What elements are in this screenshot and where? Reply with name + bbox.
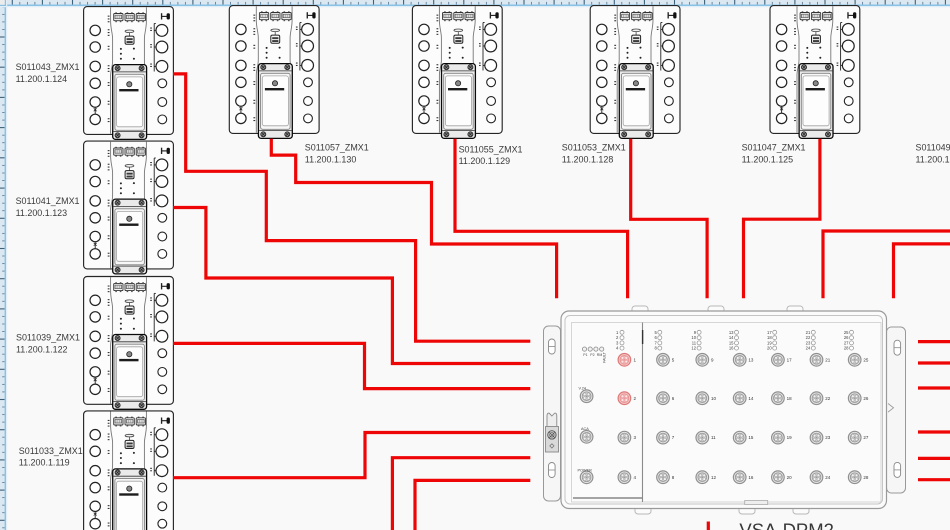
svg-text:P1: P1	[583, 353, 587, 357]
svg-text:VSA-DPM2: VSA-DPM2	[739, 520, 834, 530]
svg-text:16: 16	[729, 346, 734, 351]
svg-text:11.200.1.124: 11.200.1.124	[16, 74, 68, 84]
svg-text:18: 18	[787, 396, 793, 401]
svg-text:11.200.1.123: 11.200.1.123	[16, 208, 68, 218]
svg-text:S011049_ZMX1: S011049_ZMX1	[916, 143, 950, 153]
svg-text:22: 22	[825, 396, 831, 401]
svg-text:S011033_ZMX1: S011033_ZMX1	[19, 446, 83, 456]
svg-text:12: 12	[691, 346, 696, 351]
svg-text:11.200.1.122: 11.200.1.122	[16, 345, 68, 355]
svg-text:11.200.1.128: 11.200.1.128	[562, 155, 614, 165]
svg-text:26: 26	[863, 396, 869, 401]
svg-text:S011057_ZMX1: S011057_ZMX1	[305, 143, 369, 153]
svg-text:S011053_ZMX1: S011053_ZMX1	[562, 143, 626, 153]
svg-text:20: 20	[787, 475, 793, 480]
svg-text:27: 27	[863, 435, 869, 440]
svg-text:24: 24	[806, 346, 811, 351]
svg-text:P2: P2	[590, 353, 594, 357]
svg-text:ACA: ACA	[581, 427, 589, 431]
svg-text:21: 21	[806, 330, 811, 335]
svg-text:25: 25	[844, 330, 849, 335]
svg-text:POWER: POWER	[578, 468, 593, 472]
svg-text:11: 11	[711, 435, 716, 440]
svg-text:25: 25	[863, 357, 869, 362]
svg-text:28: 28	[863, 475, 869, 480]
svg-text:16: 16	[748, 475, 754, 480]
svg-text:10: 10	[711, 396, 717, 401]
svg-text:S011043_ZMX1: S011043_ZMX1	[16, 62, 80, 72]
svg-text:19: 19	[787, 435, 793, 440]
svg-text:S011039_ZMX1: S011039_ZMX1	[16, 333, 80, 343]
svg-text:FAULT: FAULT	[603, 351, 607, 362]
svg-text:11.200.1.125: 11.200.1.125	[742, 155, 794, 165]
svg-text:11.200.1.129: 11.200.1.129	[459, 156, 511, 166]
svg-text:17: 17	[767, 330, 772, 335]
svg-text:20: 20	[767, 346, 772, 351]
svg-text:13: 13	[729, 330, 734, 335]
svg-text:24: 24	[825, 475, 831, 480]
svg-text:11.200.1.130: 11.200.1.130	[305, 155, 357, 165]
svg-text:11.200.1.119: 11.200.1.119	[19, 458, 70, 468]
svg-text:11.200.1.126: 11.200.1.126	[916, 155, 950, 165]
svg-text:13: 13	[748, 357, 754, 362]
svg-text:21: 21	[825, 357, 831, 362]
svg-text:S011041_ZMX1: S011041_ZMX1	[16, 196, 80, 206]
svg-text:14: 14	[748, 396, 754, 401]
svg-text:28: 28	[844, 346, 849, 351]
svg-text:17: 17	[787, 357, 793, 362]
svg-text:V.24: V.24	[579, 386, 586, 390]
svg-text:RM: RM	[597, 353, 603, 357]
svg-text:S011047_ZMX1: S011047_ZMX1	[742, 143, 806, 153]
svg-text:23: 23	[825, 435, 831, 440]
svg-text:15: 15	[748, 435, 754, 440]
svg-text:S011055_ZMX1: S011055_ZMX1	[459, 144, 523, 154]
svg-text:12: 12	[711, 475, 717, 480]
